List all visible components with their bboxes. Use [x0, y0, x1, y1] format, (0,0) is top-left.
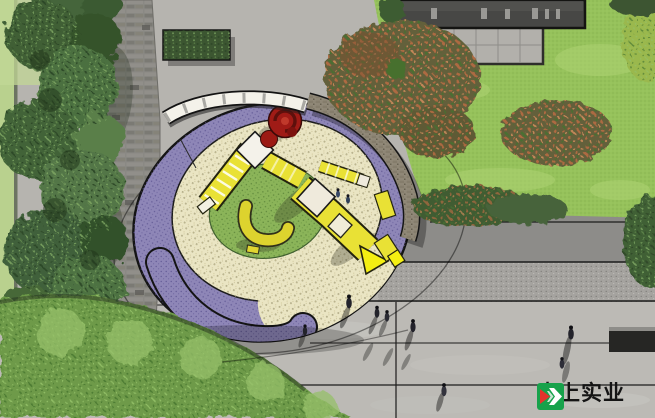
autumn-bush-small — [399, 106, 475, 158]
plan-canvas — [0, 0, 655, 418]
autumn-bush-mid — [501, 100, 613, 166]
watermark: 大上实业 — [537, 383, 625, 404]
tuft-by-terrace — [387, 59, 407, 79]
bench-block — [609, 327, 655, 352]
hedge-planter — [163, 30, 235, 66]
site-plan-rendering: 大上实业 — [0, 0, 655, 418]
dashang-logo-icon — [537, 383, 564, 410]
person-figure-on-equipment — [346, 194, 350, 203]
granite-texture — [378, 262, 655, 302]
person-figure-on-equipment — [336, 188, 340, 197]
